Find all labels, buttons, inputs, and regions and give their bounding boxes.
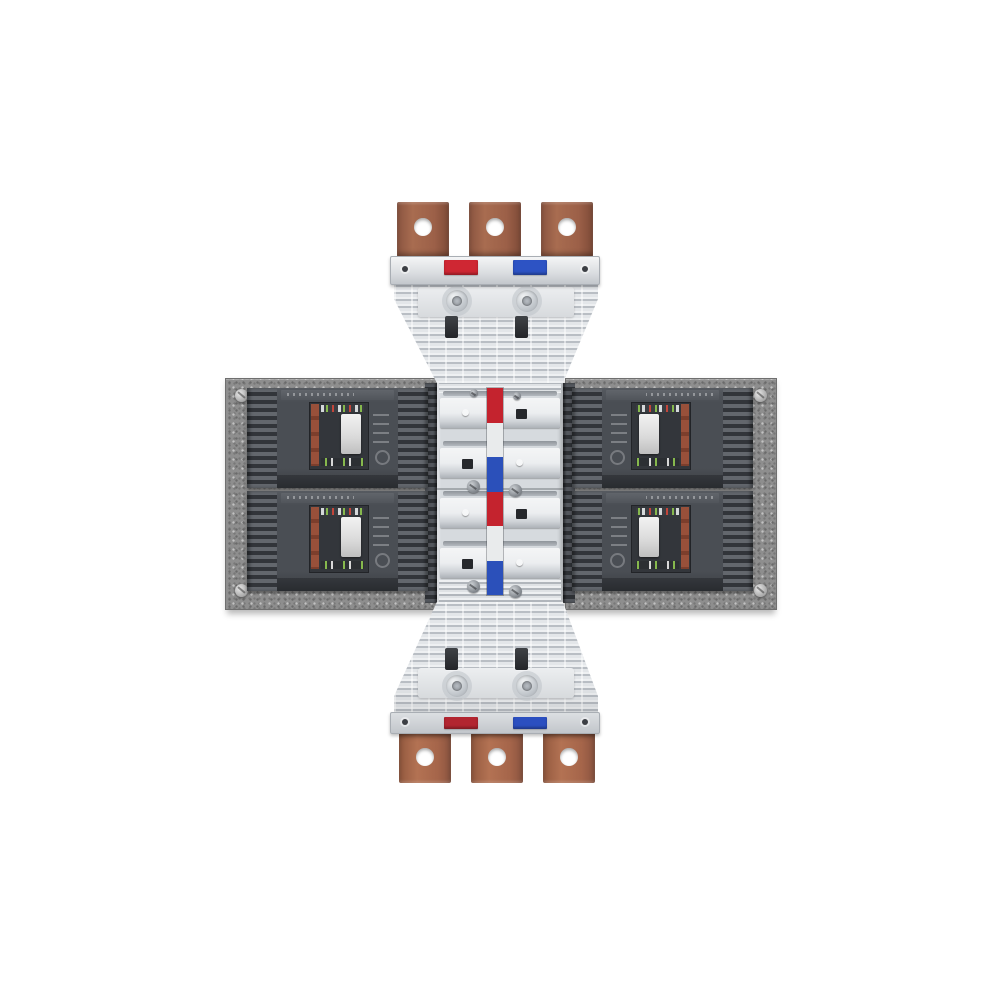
breaker-window	[309, 505, 369, 573]
product-photo	[0, 0, 1000, 1000]
flap-dot	[516, 459, 523, 466]
phase-marker-blue	[513, 260, 547, 275]
bus-head-bar-top	[390, 256, 600, 285]
breaker-body	[602, 491, 723, 591]
breaker-indicators	[321, 508, 364, 515]
stripe-segment-red	[487, 388, 503, 423]
adapter-smooth-band	[418, 287, 573, 317]
circuit-breaker-left-bottom	[247, 491, 428, 591]
breaker-label-strip	[281, 390, 394, 400]
screw-head	[470, 389, 478, 397]
screw-head	[582, 266, 588, 272]
breaker-indicators	[636, 508, 679, 515]
screw-head	[402, 719, 408, 725]
breaker-label-strip	[606, 493, 719, 503]
phase-marker-blue	[513, 717, 547, 729]
flap-dot	[462, 409, 469, 416]
breaker-window	[631, 402, 691, 470]
breaker-fin-block	[247, 491, 277, 591]
terminal-bolt-hole	[414, 218, 432, 236]
breaker-brand-strip	[311, 404, 319, 466]
copper-terminal-2	[469, 202, 521, 257]
breaker-base-strip	[602, 578, 723, 591]
phase-color-stripe	[487, 388, 503, 595]
breaker-indicators	[636, 561, 679, 569]
breaker-indicators	[321, 561, 364, 569]
circuit-breaker-right-top	[572, 388, 753, 488]
breaker-base-strip	[277, 578, 398, 591]
plate-screw	[754, 389, 767, 402]
breaker-emblem	[610, 450, 625, 465]
terminal-bolt-hole	[416, 748, 434, 766]
breaker-brand-strip	[681, 507, 689, 569]
breaker-body	[277, 491, 398, 591]
screw-head	[513, 392, 521, 400]
copper-terminal-1	[397, 202, 449, 257]
breaker-emblem	[610, 553, 625, 568]
flap-dot	[462, 509, 469, 516]
breaker-markings	[373, 414, 389, 444]
terminal-bolt-hole	[488, 748, 506, 766]
busbar-adapter-top	[394, 283, 598, 383]
copper-terminal-3	[543, 731, 595, 783]
stripe-segment-blue	[487, 561, 503, 596]
breaker-brand-strip	[311, 507, 319, 569]
adapter-boss-screw	[446, 290, 468, 312]
center-busbar-column	[437, 380, 563, 602]
stripe-segment-white	[487, 423, 503, 458]
phase-marker-red	[444, 717, 478, 729]
breaker-toggle	[341, 517, 361, 557]
breaker-fin-block	[247, 388, 277, 488]
screw-head	[509, 484, 522, 497]
adapter-boss-screw	[446, 675, 468, 697]
breaker-label-strip	[281, 493, 394, 503]
circuit-breaker-right-bottom	[572, 491, 753, 591]
stripe-segment-red	[487, 492, 503, 527]
flap-slot	[462, 459, 473, 469]
screw-head	[467, 580, 480, 593]
breaker-indicators	[636, 405, 679, 412]
breaker-fin-block	[398, 491, 428, 591]
breaker-indicators	[636, 458, 679, 466]
flap-dot	[516, 559, 523, 566]
circuit-breaker-left-top	[247, 388, 428, 488]
breaker-indicators	[321, 405, 364, 412]
adapter-boss-screw	[516, 675, 538, 697]
breaker-body	[277, 388, 398, 488]
bottom-terminal-row	[399, 731, 595, 783]
flap-slot	[462, 559, 473, 569]
copper-terminal-1	[399, 731, 451, 783]
stripe-segment-white	[487, 526, 503, 561]
terminal-bolt-hole	[558, 218, 576, 236]
copper-terminal-3	[541, 202, 593, 257]
breaker-toggle	[341, 414, 361, 454]
adapter-slot	[445, 316, 458, 338]
breaker-fin-block	[723, 491, 753, 591]
breaker-window	[309, 402, 369, 470]
adapter-slot	[445, 648, 458, 670]
breaker-fin-block	[398, 388, 428, 488]
breaker-body	[602, 388, 723, 488]
phase-marker-red	[444, 260, 478, 275]
breaker-markings	[611, 517, 627, 547]
adapter-slot	[515, 648, 528, 670]
screw-head	[582, 719, 588, 725]
adapter-smooth-band	[418, 668, 573, 698]
stripe-segment-blue	[487, 457, 503, 492]
screw-head	[467, 480, 480, 493]
breaker-markings	[611, 414, 627, 444]
breaker-window	[631, 505, 691, 573]
adapter-slot	[515, 316, 528, 338]
breaker-markings	[373, 517, 389, 547]
breaker-fin-block	[723, 388, 753, 488]
flap-slot	[516, 509, 527, 519]
breaker-base-strip	[277, 475, 398, 488]
terminal-bolt-hole	[560, 748, 578, 766]
breaker-emblem	[375, 450, 390, 465]
breaker-fin-block	[572, 388, 602, 488]
busbar-adapter-bottom	[394, 602, 598, 714]
flap-slot	[516, 409, 527, 419]
breaker-fin-block	[572, 491, 602, 591]
screw-head	[402, 266, 408, 272]
breaker-toggle	[639, 517, 659, 557]
adapter-boss-screw	[516, 290, 538, 312]
breaker-label-strip	[606, 390, 719, 400]
copper-terminal-2	[471, 731, 523, 783]
breaker-toggle	[639, 414, 659, 454]
terminal-bolt-hole	[486, 218, 504, 236]
breaker-brand-strip	[681, 404, 689, 466]
bus-head-bar-bottom	[390, 712, 600, 734]
breaker-emblem	[375, 553, 390, 568]
top-terminal-row	[397, 202, 593, 257]
breaker-base-strip	[602, 475, 723, 488]
screw-head	[509, 585, 522, 598]
breaker-indicators	[321, 458, 364, 466]
plate-screw	[754, 584, 767, 597]
